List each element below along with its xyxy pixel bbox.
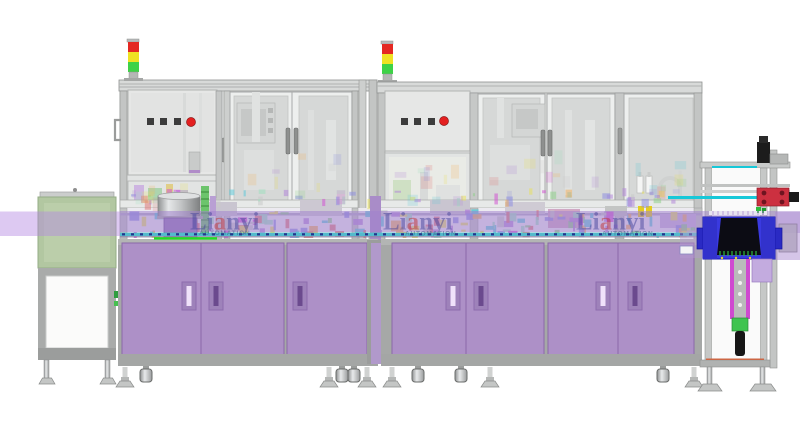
svg-text:AUTOMATION: AUTOMATION: [602, 230, 653, 237]
svg-text:AUTOMATION: AUTOMATION: [199, 230, 250, 237]
svg-text:AUTOMATION: AUTOMATION: [405, 230, 456, 237]
